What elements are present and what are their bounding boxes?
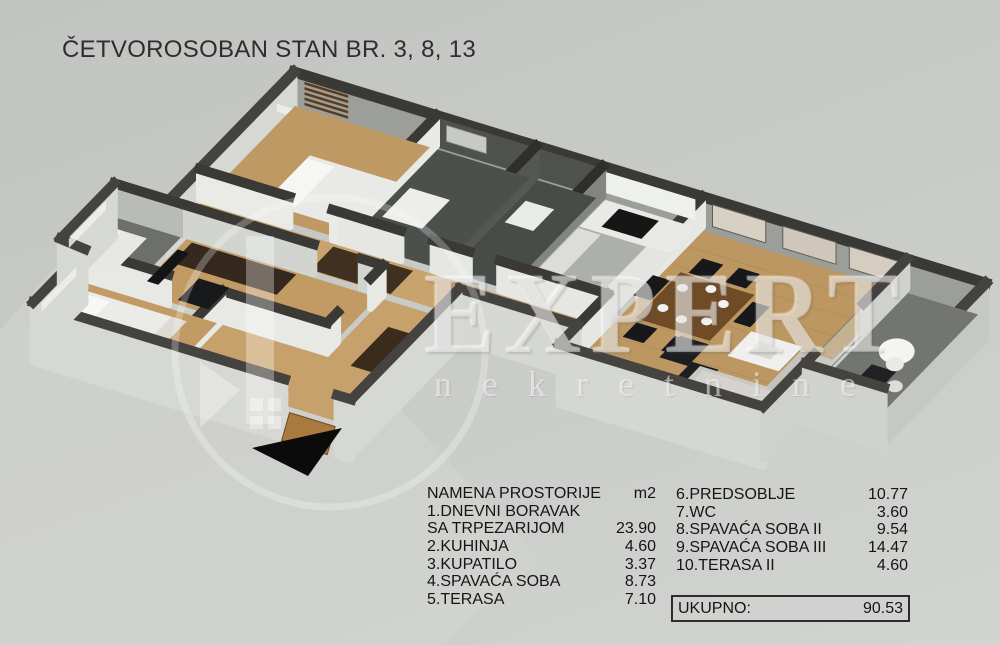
room-label: 8.SPAVAĆA SOBA II	[676, 521, 822, 539]
room-area: 4.60	[877, 557, 908, 575]
room-area: 4.60	[625, 538, 656, 556]
room-area: 23.90	[616, 520, 656, 538]
room-label: 7.WC	[676, 504, 716, 522]
room-area: 7.10	[625, 591, 656, 609]
area-table-left: NAMENA PROSTORIJE m2 1.DNEVNI BORAVAKSA …	[427, 485, 656, 609]
room-label: 9.SPAVAĆA SOBA III	[676, 539, 826, 557]
total-box: UKUPNO: 90.53	[671, 595, 910, 622]
header-label: NAMENA PROSTORIJE	[427, 485, 601, 503]
header-unit: m2	[634, 485, 656, 503]
legend-row: 3.KUPATILO3.37	[427, 556, 656, 574]
legend-row: 6.PREDSOBLJE10.77	[676, 486, 908, 504]
legend-row: 2.KUHINJA4.60	[427, 538, 656, 556]
area-table-header: NAMENA PROSTORIJE m2	[427, 485, 656, 503]
page-title: ČETVOROSOBAN STAN BR. 3, 8, 13	[62, 36, 476, 64]
room-area: 10.77	[868, 486, 908, 504]
legend-row: 1.DNEVNI BORAVAK	[427, 503, 656, 521]
legend-row: 7.WC3.60	[676, 504, 908, 522]
total-value: 90.53	[863, 600, 903, 618]
room-label: 6.PREDSOBLJE	[676, 486, 795, 504]
listing-image: ČETVOROSOBAN STAN BR. 3, 8, 13 EXPERT ne…	[0, 0, 1000, 645]
room-label: 2.KUHINJA	[427, 538, 509, 556]
legend-row: 4.SPAVAĆA SOBA8.73	[427, 573, 656, 591]
legend-row: 9.SPAVAĆA SOBA III14.47	[676, 539, 908, 557]
room-area: 9.54	[877, 521, 908, 539]
room-label: 1.DNEVNI BORAVAK	[427, 503, 580, 521]
legend-row: 10.TERASA II4.60	[676, 557, 908, 575]
area-table-right: 6.PREDSOBLJE10.777.WC3.608.SPAVAĆA SOBA …	[676, 486, 908, 574]
room-label: SA TRPEZARIJOM	[427, 520, 565, 538]
room-area: 3.37	[625, 556, 656, 574]
room-label: 5.TERASA	[427, 591, 504, 609]
legend-row: SA TRPEZARIJOM23.90	[427, 520, 656, 538]
room-area: 14.47	[868, 539, 908, 557]
room-label: 4.SPAVAĆA SOBA	[427, 573, 560, 591]
room-label: 3.KUPATILO	[427, 556, 517, 574]
room-label: 10.TERASA II	[676, 557, 775, 575]
room-area: 8.73	[625, 573, 656, 591]
total-label: UKUPNO:	[678, 600, 751, 618]
room-area: 3.60	[877, 504, 908, 522]
legend-row: 5.TERASA7.10	[427, 591, 656, 609]
legend-row: 8.SPAVAĆA SOBA II9.54	[676, 521, 908, 539]
